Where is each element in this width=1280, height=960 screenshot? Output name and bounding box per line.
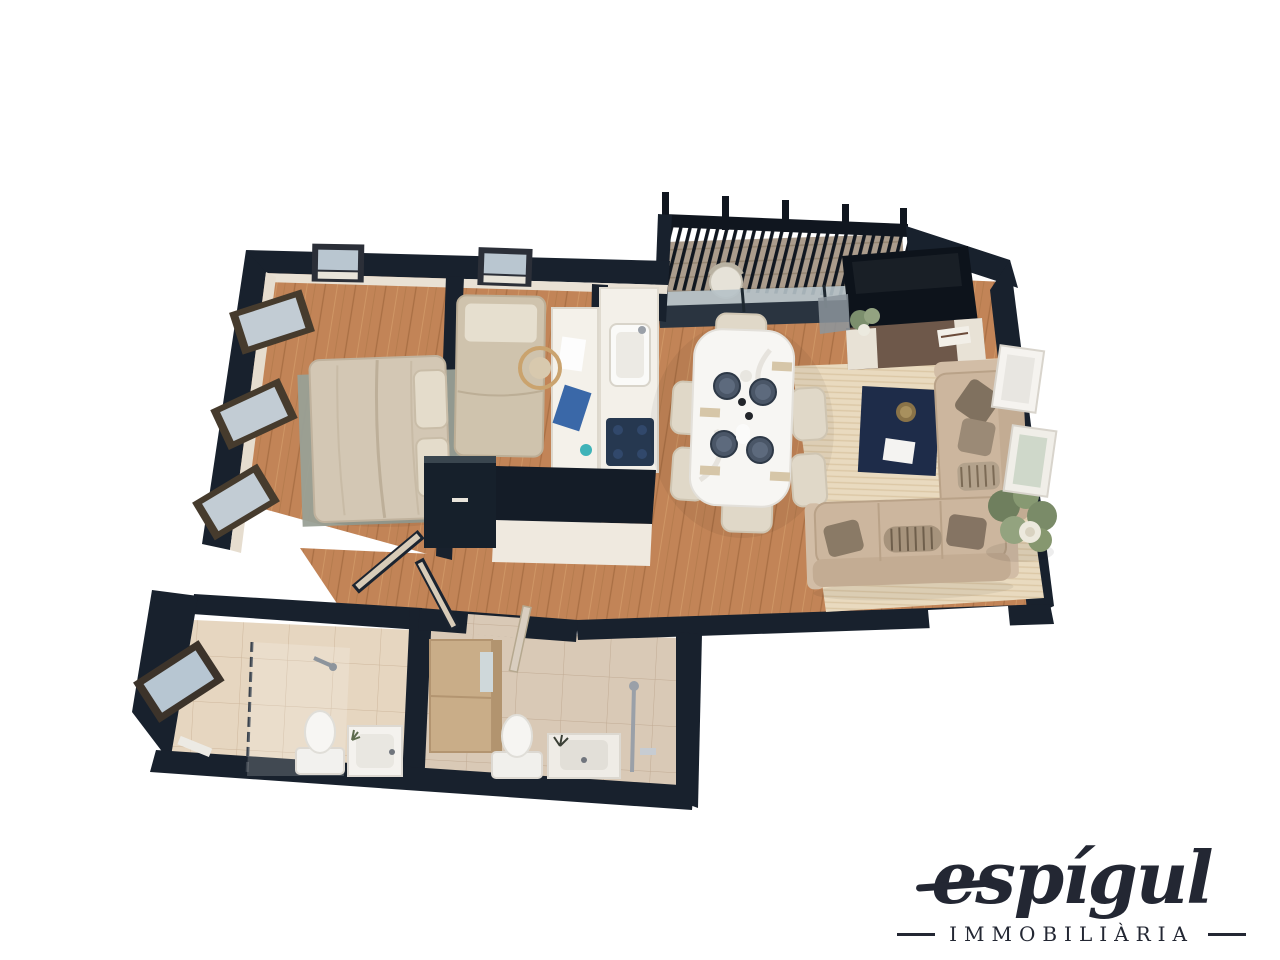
hall-bath2-door-gap — [466, 614, 522, 638]
kitchen-faucet — [638, 326, 646, 334]
brand-wordmark: espígul — [932, 840, 1212, 916]
sofa-pillow — [945, 514, 987, 551]
toilet-bowl — [502, 715, 532, 757]
tagline-dash-right — [1208, 933, 1246, 936]
cooktop — [606, 418, 654, 466]
door-mullion — [742, 288, 744, 312]
sink-basin — [616, 332, 644, 378]
toilet-bowl — [305, 711, 335, 753]
agency-logo: espígul IMMOBILIÀRIA — [897, 840, 1246, 946]
cabinet-handle — [452, 498, 468, 502]
desk-chair-seat — [529, 357, 551, 379]
sofa-pillow — [957, 417, 997, 457]
floor-plan-render — [0, 0, 1280, 960]
bed-pillow — [414, 370, 448, 429]
serving-dish — [736, 424, 750, 444]
vanity-basin — [560, 740, 608, 770]
bowl — [740, 370, 752, 382]
kitchen-island-front — [492, 520, 652, 566]
tagline-dash-left — [897, 933, 935, 936]
sofa — [804, 492, 1020, 603]
master-top-window-sill — [318, 272, 358, 280]
tagline-text: IMMOBILIÀRIA — [949, 922, 1194, 946]
hall-cabinet-top — [424, 456, 496, 463]
cabinet-side — [492, 640, 502, 752]
kitchen-island-top — [494, 466, 656, 524]
vase — [858, 324, 870, 336]
page: espígul IMMOBILIÀRIA — [0, 0, 1280, 960]
vanity-basin — [356, 734, 394, 768]
single-bed-pillow — [464, 302, 539, 343]
book — [883, 438, 916, 464]
shower-column — [632, 686, 634, 772]
desk-paper — [558, 336, 586, 371]
mirror — [480, 652, 493, 692]
vanity-faucet — [389, 749, 395, 755]
desk-cup — [580, 444, 592, 456]
master-top-window-glass — [318, 250, 358, 271]
brand-name: espígul — [932, 835, 1212, 920]
shower-handle — [640, 748, 656, 755]
bedroom2-top-window-sill — [483, 275, 525, 283]
pepper-mill — [738, 398, 746, 406]
entry-gap — [928, 606, 1010, 632]
tagline-row: IMMOBILIÀRIA — [897, 922, 1246, 946]
bedroom2-top-window-glass — [484, 253, 527, 274]
pepper-mill — [745, 412, 753, 420]
coffee-table — [858, 386, 940, 476]
vanity-faucet — [581, 757, 587, 763]
plant-on-stand — [864, 308, 880, 324]
glass-cabinet — [818, 294, 850, 334]
wing-right-wall — [676, 632, 702, 808]
